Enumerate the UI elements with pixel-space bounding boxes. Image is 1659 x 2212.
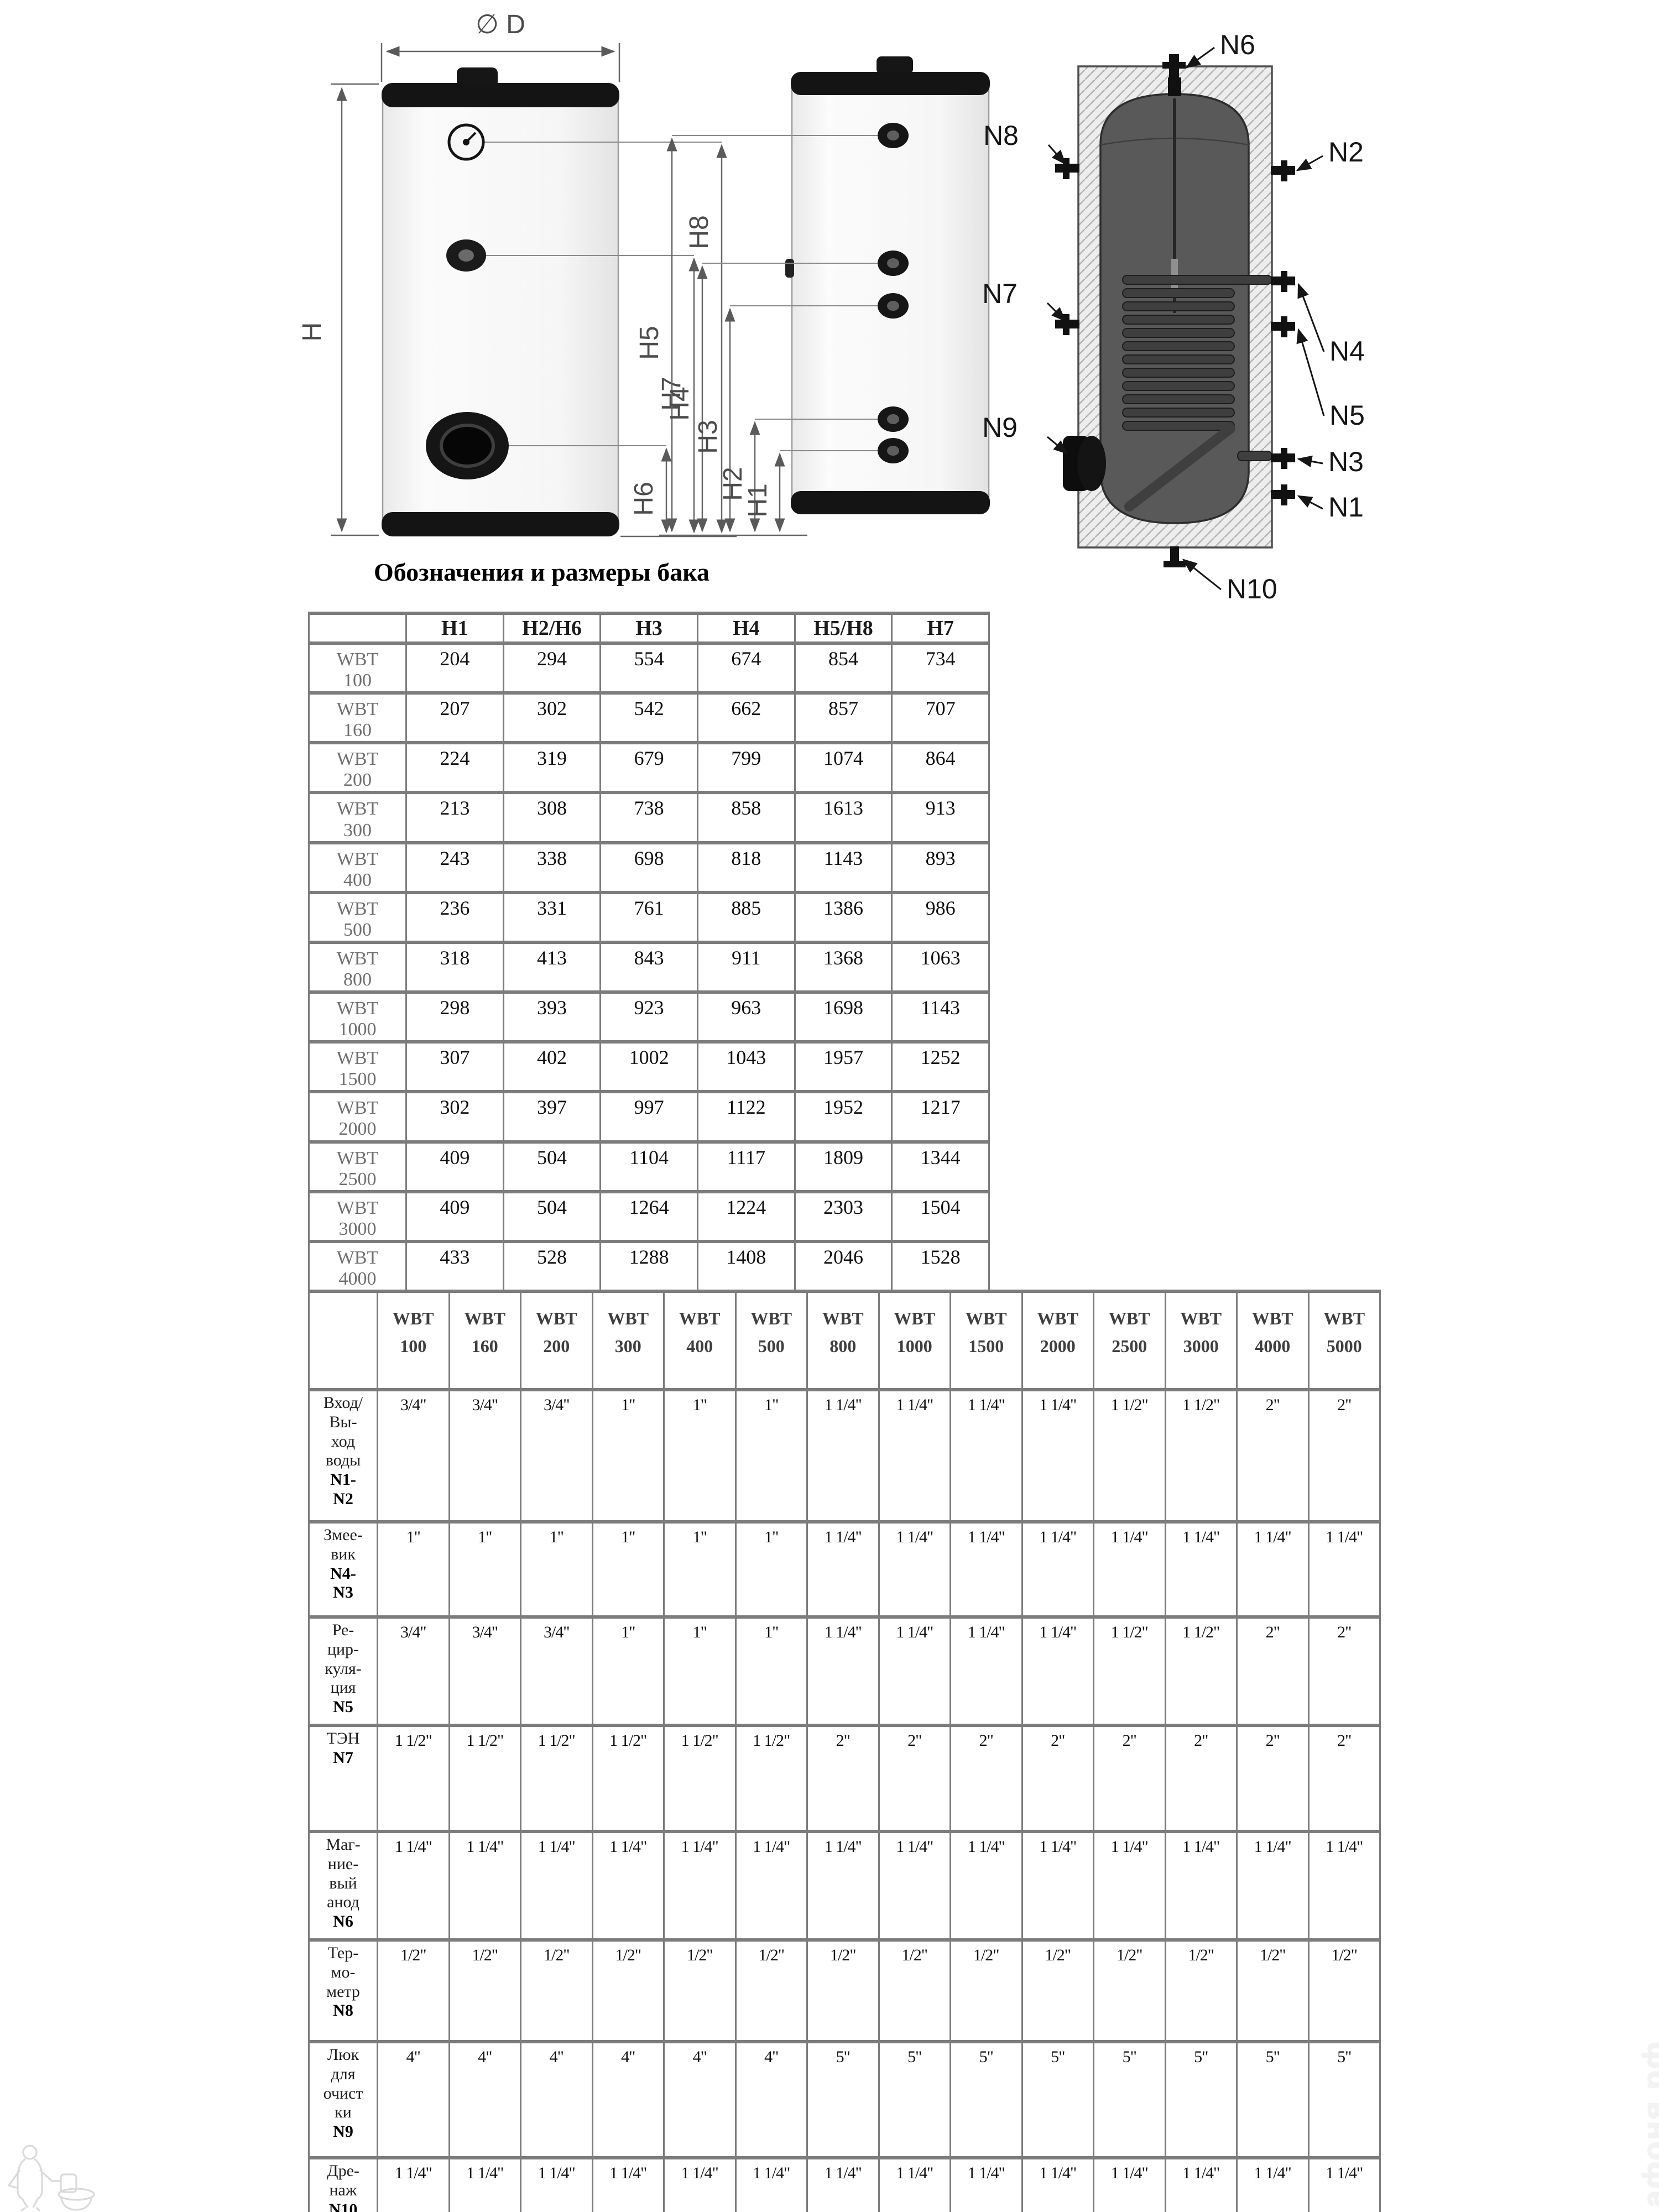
dimension-value-cell: 207 [406,693,504,743]
dimension-value-cell: 1252 [892,1042,989,1092]
document-page: ∅ D H [0,0,1659,2212]
model-column-header: WBT 2000 [1022,1291,1094,1390]
port-label-n10: N10 [1227,573,1277,604]
connection-size-cell: 1/2" [664,1940,736,2042]
connection-size-cell: 1 1/2" [378,1725,450,1832]
dimension-value-cell: 331 [503,893,601,942]
connection-code: N9 [311,2122,375,2142]
table-row: Вход/ Вы- ход воды N1- N23/4"3/4"3/4"1"1… [309,1390,1380,1522]
connection-size-cell: 1/2" [1094,1940,1166,2042]
dimension-value-cell: 1613 [795,792,892,842]
connection-label-cell: Люк для очист ки N9 [309,2042,378,2158]
dimension-value-cell: 308 [503,792,601,842]
connection-size-cell: 5" [1165,2042,1237,2158]
h4-dim-label: H4 [665,387,695,420]
connection-size-cell: 1 1/4" [1165,1522,1237,1617]
dimension-value-cell: 2303 [795,1192,892,1241]
corner-cell [309,613,406,643]
table-row: WBT 100204294554674854734 [309,643,989,693]
side-view-diagram: H5 H4 H3 H2 H1 [635,56,990,535]
connection-size-cell: 2" [1308,1617,1380,1725]
tank-bottom-cap [382,512,619,536]
connection-size-cell: 5" [1308,2042,1380,2158]
model-cell: WBT 160 [309,693,406,743]
front-view-diagram: ∅ D H [298,10,737,536]
model-column-header: WBT 100 [378,1291,450,1390]
top-port-cap [877,56,913,74]
connection-size-cell: 1 1/4" [1308,1522,1380,1617]
connection-size-cell: 1 1/2" [1165,1617,1237,1725]
table-row: WBT 4002433386988181143893 [309,843,989,893]
connection-size-cell: 1/2" [735,1940,807,2042]
connection-size-cell: 5" [807,2042,879,2158]
dimension-value-cell: 1143 [892,992,989,1042]
table-row: WBT 80031841384391113681063 [309,942,989,992]
connection-size-cell: 4" [521,2042,593,2158]
model-cell: WBT 200 [309,743,406,792]
table-row: Ре- цир- куля- ция N53/4"3/4"3/4"1"1"1"1… [309,1617,1380,1725]
connection-size-cell: 1 1/4" [1237,2158,1309,2212]
dim-column-header: H7 [892,613,989,643]
connection-size-cell: 1" [592,1522,664,1617]
plumber-watermark-icon [3,2141,136,2212]
connection-size-cell: 1 1/4" [879,1522,951,1617]
dimension-value-cell: 1074 [795,743,892,792]
port-label-n1: N1 [1328,492,1364,523]
dimension-value-cell: 528 [503,1241,601,1291]
dimension-value-cell: 1264 [601,1192,698,1241]
dimension-value-cell: 542 [601,693,698,743]
connection-size-cell: 1 1/4" [735,1832,807,1940]
connection-size-cell: 1 1/4" [951,1832,1022,1940]
tank-top-cap [791,72,990,95]
dimension-value-cell: 409 [406,1192,504,1241]
model-column-header: WBT 5000 [1308,1291,1380,1390]
connection-size-cell: 1" [592,1617,664,1725]
model-cell: WBT 800 [309,942,406,992]
connection-size-cell: 1/2" [378,1940,450,2042]
connection-size-cell: 1 1/4" [951,2158,1022,2212]
connection-size-cell: 1/2" [1237,1940,1309,2042]
model-column-header: WBT 300 [592,1291,664,1390]
connection-size-cell: 1/2" [521,1940,593,2042]
connection-size-cell: 1 1/2" [449,1725,521,1832]
connection-label-cell: Вход/ Вы- ход воды N1- N2 [309,1390,378,1522]
connection-size-cell: 1 1/4" [1094,2158,1166,2212]
dimension-value-cell: 698 [601,843,698,893]
connection-size-cell: 1 1/4" [807,1522,879,1617]
dimension-value-cell: 1368 [795,942,892,992]
dimension-value-cell: 1104 [601,1142,698,1192]
dimension-value-cell: 923 [601,992,698,1042]
table-row: WBT 15003074021002104319571252 [309,1042,989,1092]
dimension-value-cell: 433 [406,1241,504,1291]
connection-size-cell: 1 1/4" [1022,1390,1094,1522]
dimension-value-cell: 858 [697,792,795,842]
connection-size-cell: 1 1/4" [664,1832,736,1940]
connection-size-cell: 2" [1308,1390,1380,1522]
connection-size-cell: 5" [1022,2042,1094,2158]
connection-size-cell: 1 1/4" [1308,1832,1380,1940]
tank-top-cap [382,83,619,107]
connection-size-cell: 4" [592,2042,664,2158]
model-cell: WBT 2000 [309,1092,406,1141]
dimension-value-cell: 986 [892,893,989,942]
table-row: ТЭН N71 1/2"1 1/2"1 1/2"1 1/2"1 1/2"1 1/… [309,1725,1380,1832]
connection-label-cell: Ре- цир- куля- ция N5 [309,1617,378,1725]
connection-size-cell: 1/2" [1022,1940,1094,2042]
connection-size-cell: 1/2" [592,1940,664,2042]
dimension-value-cell: 307 [406,1042,504,1092]
dimension-value-cell: 1504 [892,1192,989,1241]
dimension-value-cell: 857 [795,693,892,743]
dimension-value-cell: 402 [503,1042,601,1092]
connection-size-cell: 3/4" [449,1617,521,1725]
model-cell: WBT 2500 [309,1142,406,1192]
connection-size-cell: 1" [664,1390,736,1522]
connection-code: N4- N3 [311,1564,375,1603]
dimension-value-cell: 1952 [795,1092,892,1141]
dimension-value-cell: 302 [406,1092,504,1141]
corner-cell [309,1291,378,1390]
connection-size-cell: 4" [735,2042,807,2158]
table-row: WBT 30004095041264122423031504 [309,1192,989,1241]
dimension-value-cell: 1957 [795,1042,892,1092]
dimensions-table-header: H1H2/H6H3H4H5/H8H7 [309,613,989,643]
connection-size-cell: 1 1/4" [807,2158,879,2212]
dimension-value-cell: 1224 [697,1192,795,1241]
table-row: WBT 2002243196797991074864 [309,743,989,792]
dimension-value-cell: 504 [503,1142,601,1192]
h1-dim-label: H1 [743,483,773,517]
connection-size-cell: 1" [664,1522,736,1617]
table-row: WBT 100029839392396316981143 [309,992,989,1042]
connection-size-cell: 2" [951,1725,1022,1832]
connection-size-cell: 1 1/2" [1094,1390,1166,1522]
table-row: WBT 3002133087388581613913 [309,792,989,842]
connection-size-cell: 1 1/4" [449,2158,521,2212]
dimension-value-cell: 679 [601,743,698,792]
connection-size-cell: 1 1/4" [1094,1832,1166,1940]
dimension-value-cell: 224 [406,743,504,792]
connection-size-cell: 2" [1094,1725,1166,1832]
connection-size-cell: 1 1/4" [449,1832,521,1940]
connections-table: WBT 100WBT 160WBT 200WBT 300WBT 400WBT 5… [308,1290,1381,2212]
n3-stub [1238,451,1272,461]
model-cell: WBT 100 [309,643,406,693]
dimension-value-cell: 554 [601,643,698,693]
dimension-value-cell: 243 [406,843,504,893]
port-label-n2: N2 [1328,137,1364,168]
dimension-value-cell: 319 [503,743,601,792]
connection-size-cell: 1" [521,1522,593,1617]
section-view-diagram: N6 N8 N2 N7 N4 N5 N9 N3 N1 N10 [982,29,1365,604]
connection-size-cell: 1 1/4" [1237,1522,1309,1617]
connection-size-cell: 4" [378,2042,450,2158]
connection-size-cell: 1 1/4" [879,1390,951,1522]
model-column-header: WBT 160 [449,1291,521,1390]
dimensions-table: H1H2/H6H3H4H5/H8H7 WBT 10020429455467485… [308,612,990,1343]
table-row: WBT 2000302397997112219521217 [309,1092,989,1141]
dimension-value-cell: 1386 [795,893,892,942]
connection-size-cell: 1 1/4" [1022,1832,1094,1940]
height-dim-label: H [298,322,327,342]
model-column-header: WBT 400 [664,1291,736,1390]
connection-size-cell: 1 1/4" [1022,1617,1094,1725]
table-row: Маг- ние- вый анод N61 1/4"1 1/4"1 1/4"1… [309,1832,1380,1940]
connection-size-cell: 1/2" [879,1940,951,2042]
connection-size-cell: 1 1/4" [807,1390,879,1522]
connection-size-cell: 5" [1094,2042,1166,2158]
dimension-value-cell: 213 [406,792,504,842]
model-column-header: WBT 1500 [951,1291,1022,1390]
h8-dim-label: H8 [685,215,714,249]
dimension-value-cell: 799 [697,743,795,792]
model-column-header: WBT 200 [521,1291,593,1390]
dim-column-header: H2/H6 [503,613,601,643]
dimension-value-cell: 302 [503,693,601,743]
table-row: Тер- мо- метр N81/2"1/2"1/2"1/2"1/2"1/2"… [309,1940,1380,2042]
table-row: WBT 160207302542662857707 [309,693,989,743]
table-row: WBT 5002363317618851386986 [309,893,989,942]
dimension-value-cell: 204 [406,643,504,693]
connection-size-cell: 2" [807,1725,879,1832]
port-label-n3: N3 [1328,446,1364,477]
port-label-n8: N8 [983,120,1019,151]
model-cell: WBT 4000 [309,1241,406,1291]
h3-dim-label: H3 [693,420,723,453]
connection-size-cell: 4" [449,2042,521,2158]
connection-size-cell: 1/2" [1165,1940,1237,2042]
connection-size-cell: 1 1/4" [592,2158,664,2212]
connection-size-cell: 2" [1237,1390,1309,1522]
dimension-value-cell: 1528 [892,1241,989,1291]
port-label-n4: N4 [1329,336,1365,367]
port-label-n7: N7 [982,278,1018,309]
connection-code: N6 [311,1912,375,1932]
connection-size-cell: 1 1/4" [1022,1522,1094,1617]
dimension-value-cell: 1698 [795,992,892,1042]
connection-size-cell: 1 1/4" [521,1832,593,1940]
connection-size-cell: 1 1/2" [1094,1617,1166,1725]
dimension-value-cell: 864 [892,743,989,792]
brand-watermark: афоня.рф [1636,2040,1659,2208]
model-cell: WBT 1000 [309,992,406,1042]
connection-size-cell: 1 1/4" [735,2158,807,2212]
dimension-value-cell: 707 [892,693,989,743]
connection-size-cell: 1" [449,1522,521,1617]
connection-size-cell: 3/4" [378,1390,450,1522]
model-column-header: WBT 1000 [879,1291,951,1390]
connection-label-cell: Дре- наж N10 [309,2158,378,2212]
dimension-value-cell: 1408 [697,1241,795,1291]
dim-column-header: H3 [601,613,698,643]
connection-code: N8 [311,2001,375,2021]
connection-size-cell: 3/4" [378,1617,450,1725]
table-row: Змее- вик N4- N31"1"1"1"1"1"1 1/4"1 1/4"… [309,1522,1380,1617]
dimension-value-cell: 2046 [795,1241,892,1291]
connection-code: N1- N2 [311,1470,375,1509]
model-cell: WBT 500 [309,893,406,942]
h6-dim-label: H6 [629,482,659,515]
section-title: Обозначения и размеры бака [374,557,709,587]
connection-size-cell: 1 1/4" [1022,2158,1094,2212]
connection-size-cell: 2" [1165,1725,1237,1832]
model-column-header: WBT 800 [807,1291,879,1390]
dimension-value-cell: 913 [892,792,989,842]
connection-size-cell: 1 1/4" [879,2158,951,2212]
dimension-value-cell: 854 [795,643,892,693]
dimension-value-cell: 1217 [892,1092,989,1141]
connection-size-cell: 4" [664,2042,736,2158]
dimension-value-cell: 338 [503,843,601,893]
dimension-value-cell: 911 [697,942,795,992]
dimension-value-cell: 298 [406,992,504,1042]
connection-size-cell: 1 1/4" [1308,2158,1380,2212]
tank-bottom-cap [791,491,990,514]
connection-size-cell: 1 1/4" [807,1832,879,1940]
table-row: Люк для очист ки N94"4"4"4"4"4"5"5"5"5"5… [309,2042,1380,2158]
dimension-value-cell: 818 [697,843,795,893]
connection-size-cell: 1 1/4" [951,1617,1022,1725]
tank-diagrams: ∅ D H [0,0,1659,608]
connection-size-cell: 1 1/4" [1237,1832,1309,1940]
model-cell: WBT 3000 [309,1192,406,1241]
connection-size-cell: 5" [1237,2042,1309,2158]
dimension-value-cell: 1043 [697,1042,795,1092]
dim-column-header: H4 [697,613,795,643]
connection-size-cell: 2" [879,1725,951,1832]
model-column-header: WBT 2500 [1094,1291,1166,1390]
connection-code: N7 [311,1749,375,1768]
connection-size-cell: 2" [1237,1725,1309,1832]
dimension-value-cell: 413 [503,942,601,992]
dimension-value-cell: 1063 [892,942,989,992]
connection-size-cell: 1 1/2" [521,1725,593,1832]
connection-size-cell: 1 1/2" [664,1725,736,1832]
model-cell: WBT 300 [309,792,406,842]
dimension-value-cell: 294 [503,643,601,693]
dimension-value-cell: 393 [503,992,601,1042]
connection-size-cell: 3/4" [449,1390,521,1522]
diameter-dim-label: ∅ D [476,10,525,39]
dimension-value-cell: 1122 [697,1092,795,1141]
dim-column-header: H5/H8 [795,613,892,643]
dimension-value-cell: 1344 [892,1142,989,1192]
connection-size-cell: 1 1/4" [521,2158,593,2212]
dimension-value-cell: 893 [892,843,989,893]
connection-size-cell: 3/4" [521,1617,593,1725]
dim-column-header: H1 [406,613,504,643]
connection-size-cell: 1 1/2" [735,1725,807,1832]
dimension-value-cell: 734 [892,643,989,693]
connection-size-cell: 1 1/4" [879,1832,951,1940]
connection-size-cell: 1 1/4" [592,1832,664,1940]
model-column-header: WBT 500 [735,1291,807,1390]
connection-size-cell: 1 1/4" [807,1617,879,1725]
model-column-header: WBT 4000 [1237,1291,1309,1390]
port-label-n9: N9 [982,412,1018,443]
connection-size-cell: 1" [378,1522,450,1617]
connection-label-cell: Змее- вик N4- N3 [309,1522,378,1617]
connection-size-cell: 5" [879,2042,951,2158]
connection-size-cell: 5" [951,2042,1022,2158]
table-row: WBT 25004095041104111718091344 [309,1142,989,1192]
connection-size-cell: 1 1/4" [951,1390,1022,1522]
connection-size-cell: 1 1/2" [1165,1390,1237,1522]
connection-size-cell: 1/2" [449,1940,521,2042]
connection-size-cell: 1" [664,1617,736,1725]
dimension-value-cell: 674 [697,643,795,693]
connection-size-cell: 1 1/4" [1165,1832,1237,1940]
dimension-value-cell: 738 [601,792,698,842]
connection-label-cell: ТЭН N7 [309,1725,378,1832]
model-cell: WBT 1500 [309,1042,406,1092]
model-column-header: WBT 3000 [1165,1291,1237,1390]
dimension-value-cell: 397 [503,1092,601,1141]
connection-size-cell: 1 1/4" [1094,1522,1166,1617]
dimension-value-cell: 1288 [601,1241,698,1291]
left-stub-port [785,259,794,278]
connection-size-cell: 1 1/2" [592,1725,664,1832]
h5-dim-label: H5 [635,326,664,359]
dimension-value-cell: 1809 [795,1142,892,1192]
dimension-value-cell: 662 [697,693,795,743]
connection-size-cell: 1 1/4" [378,2158,450,2212]
connection-size-cell: 1" [592,1390,664,1522]
dimension-value-cell: 1143 [795,843,892,893]
connection-size-cell: 1" [735,1522,807,1617]
dimension-value-cell: 504 [503,1192,601,1241]
dimension-value-cell: 963 [697,992,795,1042]
connection-size-cell: 2" [1237,1617,1309,1725]
model-cell: WBT 400 [309,843,406,893]
dimension-value-cell: 885 [697,893,795,942]
connection-size-cell: 2" [1022,1725,1094,1832]
connection-label-cell: Тер- мо- метр N8 [309,1940,378,2042]
connection-size-cell: 2" [1308,1725,1380,1832]
connection-size-cell: 3/4" [521,1390,593,1522]
connection-size-cell: 1 1/4" [951,1522,1022,1617]
connection-size-cell: 1 1/4" [378,1832,450,1940]
dimension-value-cell: 997 [601,1092,698,1141]
table-row: Дре- наж N101 1/4"1 1/4"1 1/4"1 1/4"1 1/… [309,2158,1380,2212]
connection-size-cell: 1" [735,1390,807,1522]
connections-table-header: WBT 100WBT 160WBT 200WBT 300WBT 400WBT 5… [309,1291,1380,1390]
connection-label-cell: Маг- ние- вый анод N6 [309,1832,378,1940]
connection-size-cell: 1 1/4" [879,1617,951,1725]
connection-size-cell: 1" [735,1617,807,1725]
table-row: WBT 40004335281288140820461528 [309,1241,989,1291]
dimension-value-cell: 843 [601,942,698,992]
connection-size-cell: 1/2" [807,1940,879,2042]
port-label-n6: N6 [1220,29,1255,60]
dimension-value-cell: 318 [406,942,504,992]
dimension-value-cell: 1117 [697,1142,795,1192]
port-label-n5: N5 [1329,400,1365,431]
dimension-value-cell: 236 [406,893,504,942]
connection-size-cell: 1 1/4" [664,2158,736,2212]
connection-size-cell: 1/2" [1308,1940,1380,2042]
connection-code: N5 [311,1698,375,1717]
connection-code: N10 [311,2200,375,2212]
dimension-value-cell: 761 [601,893,698,942]
connection-size-cell: 1 1/4" [1165,2158,1237,2212]
connection-size-cell: 1/2" [951,1940,1022,2042]
dimension-value-cell: 1002 [601,1042,698,1092]
dimension-value-cell: 409 [406,1142,504,1192]
